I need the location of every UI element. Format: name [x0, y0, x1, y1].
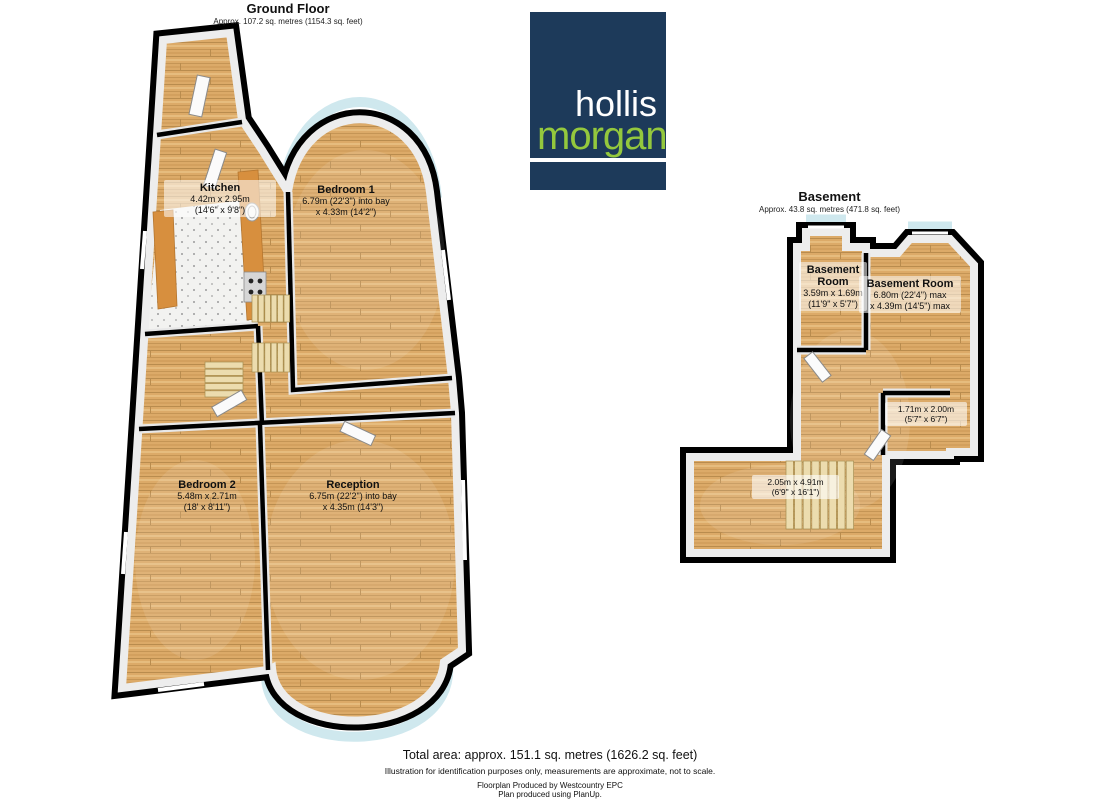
- basement-store-metric: 1.71m x 2.00m: [886, 404, 966, 414]
- produced-by-text: Floorplan Produced by Westcountry EPC: [150, 781, 950, 790]
- bedroom1-dims-imperial: x 4.33m (14'2"): [278, 207, 414, 218]
- reception-name: Reception: [285, 479, 421, 491]
- basement-title-block: Basement Approx. 43.8 sq. metres (471.8 …: [727, 190, 932, 214]
- basement-room-right-imperial: x 4.39m (14'5") max: [860, 301, 960, 312]
- basement-store-label: 1.71m x 2.00m (5'7" x 6'7"): [885, 402, 967, 426]
- kitchen-dims-metric: 4.42m x 2.95m: [165, 194, 275, 205]
- basement-room-left-name: Basement Room: [800, 264, 866, 288]
- bedroom2-label: Bedroom 2 5.48m x 2.71m (18' x 8'11"): [148, 477, 266, 514]
- reception-dims-imperial: x 4.35m (14'3"): [285, 502, 421, 513]
- total-area-text: Total area: approx. 151.1 sq. metres (16…: [150, 748, 950, 762]
- floor-sheen: [265, 440, 455, 680]
- bedroom1-name: Bedroom 1: [278, 184, 414, 196]
- basement-lower-label: 2.05m x 4.91m (6'9" x 16'1"): [752, 475, 839, 499]
- logo-divider: [530, 158, 666, 162]
- reception-dims-metric: 6.75m (22'2") into bay: [285, 491, 421, 502]
- ground-floor-plan: [122, 33, 465, 737]
- bedroom2-dims-metric: 5.48m x 2.71m: [149, 491, 265, 502]
- basement-room-right-label: Basement Room 6.80m (22'4") max x 4.39m …: [859, 276, 961, 313]
- basement-room-left-imperial: (11'9" x 5'7"): [800, 299, 866, 310]
- ground-floor-title: Ground Floor: [178, 2, 398, 16]
- basement-room-right-name: Basement Room: [860, 278, 960, 290]
- kitchen-name: Kitchen: [165, 182, 275, 194]
- bedroom2-dims-imperial: (18' x 8'11"): [149, 502, 265, 513]
- floorplan-page: Ground Floor Approx. 107.2 sq. metres (1…: [0, 0, 1100, 800]
- kitchen-label: Kitchen 4.42m x 2.95m (14'6" x 9'8"): [164, 180, 276, 217]
- hollis-morgan-logo: hollis morgan: [530, 12, 666, 190]
- basement-area: Approx. 43.8 sq. metres (471.8 sq. feet): [727, 205, 932, 214]
- basement-room-right-metric: 6.80m (22'4") max: [860, 290, 960, 301]
- basement-title: Basement: [727, 190, 932, 204]
- reception-label: Reception 6.75m (22'2") into bay x 4.35m…: [284, 477, 422, 514]
- bedroom1-dims-metric: 6.79m (22'3") into bay: [278, 196, 414, 207]
- basement-room-left-label: Basement Room 3.59m x 1.69m (11'9" x 5'7…: [799, 262, 867, 311]
- software-text: Plan produced using PlanUp.: [150, 790, 950, 799]
- bedroom1-label: Bedroom 1 6.79m (22'3") into bay x 4.33m…: [277, 182, 415, 219]
- ground-floor-area: Approx. 107.2 sq. metres (1154.3 sq. fee…: [178, 17, 398, 26]
- basement-room-left-metric: 3.59m x 1.69m: [800, 288, 866, 299]
- disclaimer-text: Illustration for identification purposes…: [150, 766, 950, 776]
- kitchen-dims-imperial: (14'6" x 9'8"): [165, 205, 275, 216]
- basement-store-imperial: (5'7" x 6'7"): [886, 414, 966, 424]
- basement-lower-imperial: (6'9" x 16'1"): [753, 487, 838, 497]
- basement-lower-metric: 2.05m x 4.91m: [753, 477, 838, 487]
- logo-word-morgan: morgan: [537, 114, 667, 158]
- ground-floor-title-block: Ground Floor Approx. 107.2 sq. metres (1…: [178, 2, 398, 26]
- bedroom2-name: Bedroom 2: [149, 479, 265, 491]
